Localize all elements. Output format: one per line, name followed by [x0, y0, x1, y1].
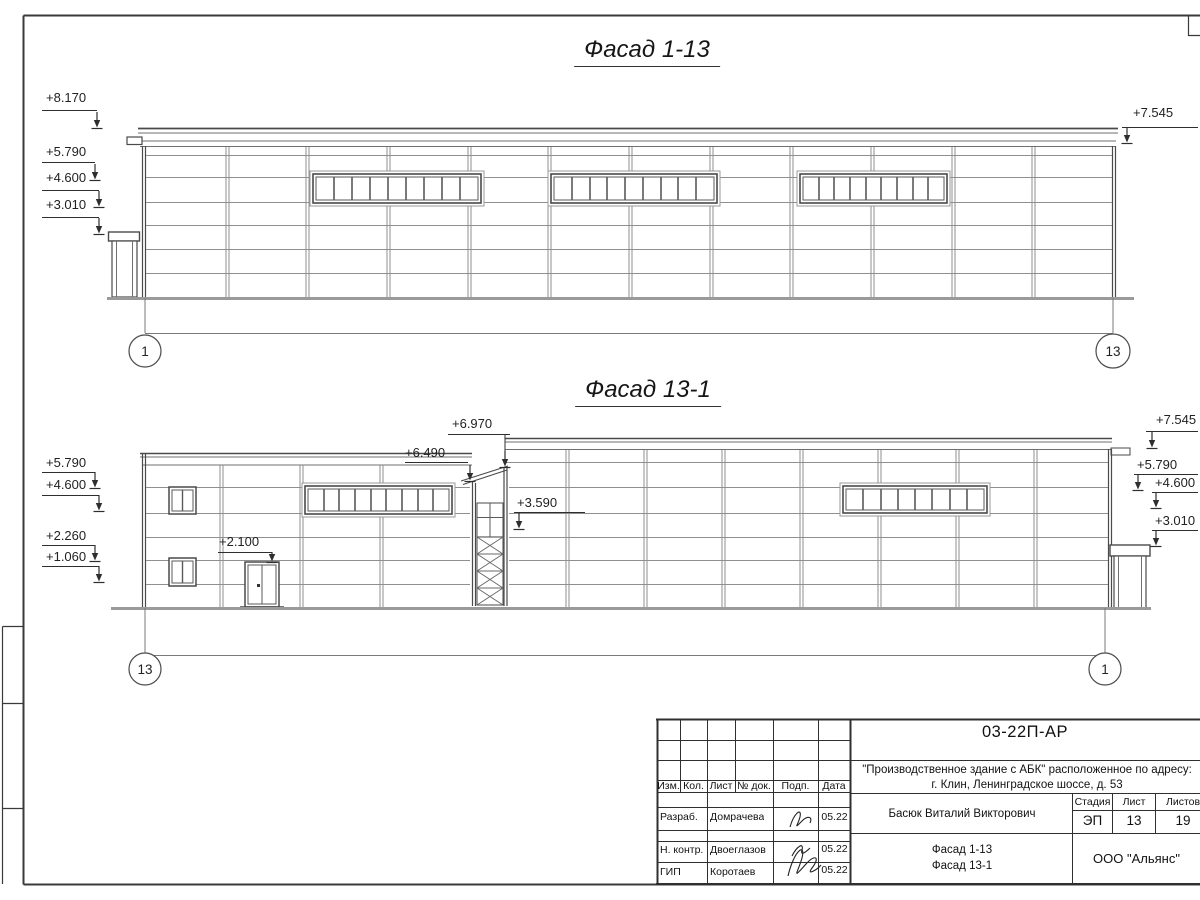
elevation-label: +8.170 [46, 90, 86, 105]
elevation-label: +2.100 [219, 534, 259, 549]
panel-joints-vertical [226, 147, 1035, 298]
small-window [169, 558, 196, 586]
person-name: Двоеглазов [710, 844, 766, 856]
panel-joints-horizontal [146, 463, 1108, 585]
elevation-label: +3.590 [517, 495, 557, 510]
ribbon-window [302, 483, 455, 517]
col-header-izm: Изм. [657, 780, 680, 792]
elevation-label: +4.600 [1155, 475, 1195, 490]
ribbon-window [548, 171, 720, 206]
elevation-label: +4.600 [46, 477, 86, 492]
elevation-label: +5.790 [46, 144, 86, 159]
date-value: 05.22 [820, 864, 849, 876]
sheets-total-value: 19 [1156, 813, 1200, 828]
elevation-label: +3.010 [46, 197, 86, 212]
roof-tab-right [1111, 448, 1130, 455]
elevation-label: +2.260 [46, 528, 86, 543]
facade2-title: Фасад 13-1 [575, 376, 721, 407]
date-value: 05.22 [820, 811, 849, 823]
axis-label: 1 [1089, 662, 1121, 677]
role-label: Разраб. [660, 811, 698, 823]
drawing-name-line1: Фасад 1-13 [852, 844, 1072, 856]
facade-13-1-linework [42, 432, 1198, 686]
sheet-value: 13 [1113, 813, 1155, 828]
project-name-line1: "Производственное здание с АБК" располож… [854, 764, 1200, 776]
drawing-name-line2: Фасад 13-1 [852, 860, 1072, 872]
elevation-label: +1.060 [46, 549, 86, 564]
col-header-list: Лист [707, 780, 735, 792]
axis-lines [145, 298, 1113, 334]
drawing-sheet: Фасад 1-13 Фасад 13-1 +8.170 +5.790 +4.6… [0, 0, 1200, 900]
ribbon-window [310, 171, 484, 206]
signatures [788, 812, 821, 876]
ribbon-window [797, 171, 950, 206]
ribbon-window [840, 483, 990, 516]
col-header-kol: Кол. [680, 780, 707, 792]
axis-label: 1 [131, 344, 159, 359]
facade-1-13-linework [42, 111, 1198, 369]
elevation-label: +7.545 [1156, 412, 1196, 427]
signature-nkontr [792, 846, 810, 856]
axis-label: 13 [1096, 344, 1130, 359]
elevation-label: +3.010 [1155, 513, 1195, 528]
axis-lines [145, 608, 1105, 656]
elevation-label: +4.600 [46, 170, 86, 185]
sheet-label: Лист [1113, 796, 1155, 808]
elevation-leaders [42, 432, 1198, 567]
roof-tab-left [127, 137, 142, 145]
company-name: ООО "Альянс" [1073, 851, 1200, 866]
elevation-label: +7.545 [1133, 105, 1173, 120]
col-header-data: Дата [818, 780, 850, 792]
small-window [169, 487, 196, 514]
entrance-door [240, 562, 284, 607]
stage-label: Стадия [1073, 796, 1112, 808]
col-header-ndok: № док. [735, 780, 773, 792]
elevation-label: +6.970 [452, 416, 492, 431]
col-header-podp: Подп. [773, 780, 818, 792]
elevation-label: +6.490 [405, 445, 445, 460]
elevation-label: +5.790 [1137, 457, 1177, 472]
supervisor-name: Басюк Виталий Викторович [852, 808, 1072, 820]
person-name: Домрачева [710, 811, 764, 823]
signature-razrab [790, 812, 811, 827]
project-name-line2: г. Клин, Ленинградское шоссе, д. 53 [854, 779, 1200, 791]
entrance-annex [109, 232, 140, 297]
stage-value: ЭП [1073, 813, 1112, 828]
role-label: Н. контр. [660, 844, 703, 856]
elevation-label: +5.790 [46, 455, 86, 470]
date-value: 05.22 [820, 843, 849, 855]
entrance-annex [1110, 545, 1150, 608]
doc-number: 03-22П-АР [850, 723, 1200, 742]
person-name: Коротаев [710, 866, 755, 878]
axis-label: 13 [129, 662, 161, 677]
sheets-total-label: Листов [1156, 796, 1200, 808]
facade1-title: Фасад 1-13 [574, 36, 720, 67]
role-label: ГИП [660, 866, 681, 878]
